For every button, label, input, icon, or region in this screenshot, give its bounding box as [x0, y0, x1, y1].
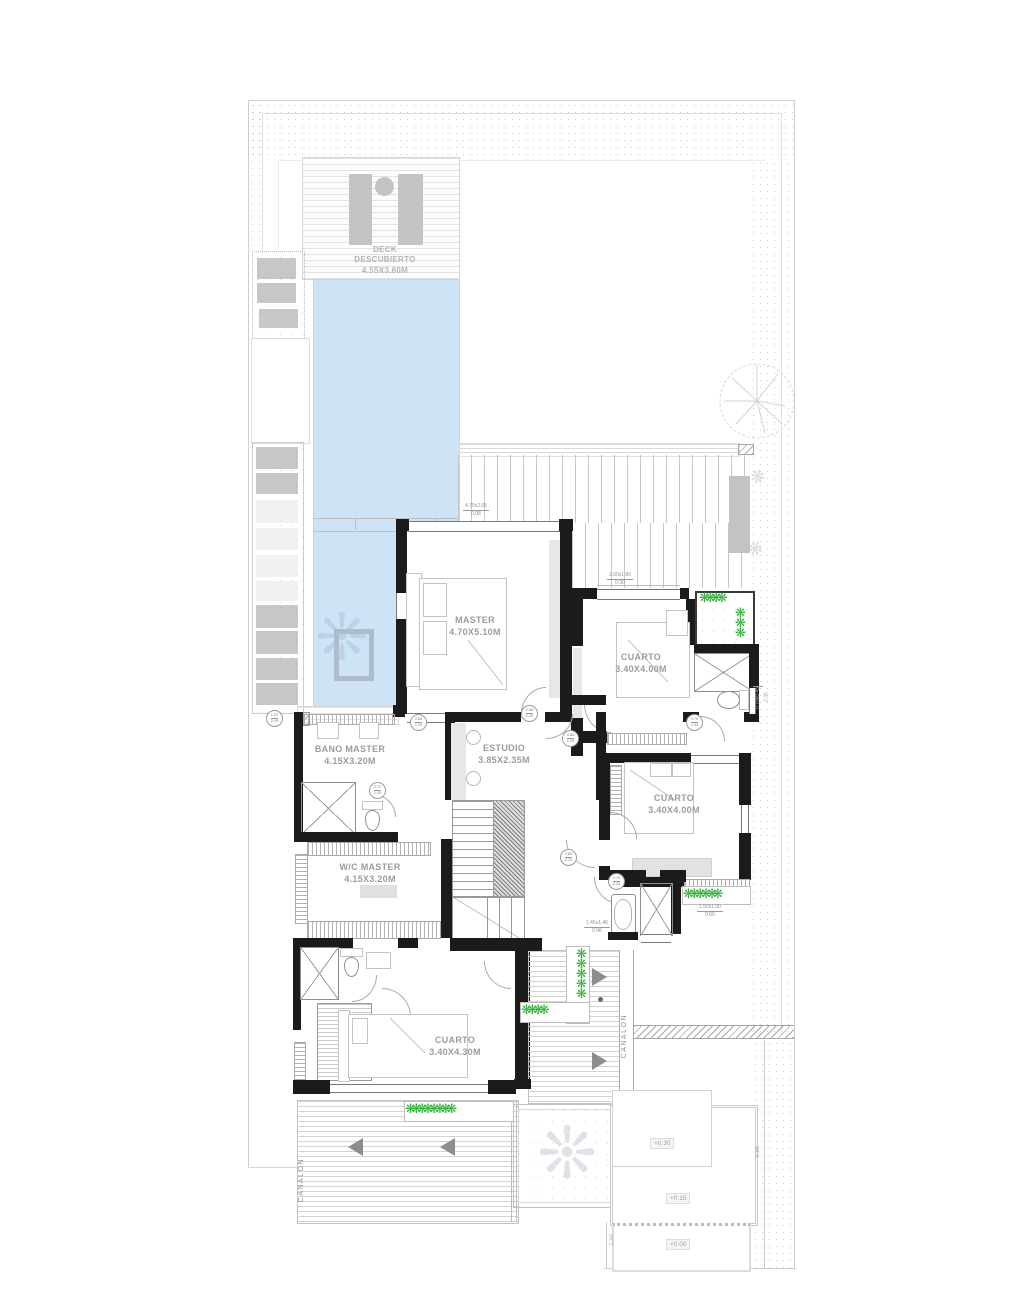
cuarto2-window-top — [691, 755, 740, 764]
hedge: ❋❋❋❋❋❋ — [682, 886, 751, 905]
door-tag: 0.70 2.05 — [369, 782, 386, 799]
wc-closet-top — [307, 842, 431, 856]
room-name: MASTER — [455, 615, 495, 627]
room-size: 3.40X4.00M — [615, 664, 667, 676]
pillow — [352, 1018, 368, 1044]
sink — [317, 722, 339, 739]
window-dim-bath2: 1.45x1.46 0.96 — [584, 920, 610, 934]
pillow — [666, 610, 688, 636]
step-block — [256, 447, 298, 469]
dim-line-150 — [606, 1222, 607, 1268]
wall — [571, 588, 583, 646]
tree-icon — [712, 356, 800, 450]
window-dim-size: 0.70x0.45 — [753, 686, 764, 709]
slope-arrow-icon — [440, 1138, 455, 1156]
dim-line-688 — [764, 1040, 765, 1268]
palm-tree-icon: ❊ — [537, 1118, 597, 1190]
wall-hatch — [294, 1042, 306, 1080]
door-tag: 0.70 2.35 — [608, 873, 625, 890]
wall — [293, 1000, 301, 1030]
wall — [294, 832, 398, 842]
step-block — [256, 555, 298, 577]
pergola-slats-upper — [458, 455, 745, 523]
door-tag-height: 2.35 — [613, 882, 621, 887]
inner-boundary-top — [262, 113, 781, 114]
window-dim-size: 2.00x1.80 — [607, 572, 633, 580]
step-block — [256, 473, 298, 494]
site-border-top — [248, 100, 795, 101]
cuarto1-sill — [607, 733, 687, 745]
site-border-right — [794, 100, 795, 1270]
window-dim-sill: 0.90 — [615, 580, 625, 587]
hedge: ❋❋❋❋❋❋❋❋ — [404, 1101, 514, 1122]
window-dim-cuarto1: 2.00x1.80 0.90 — [607, 572, 633, 586]
door-tag-height: 2.05 — [271, 719, 279, 724]
door-arc — [700, 716, 725, 741]
wall — [680, 588, 689, 599]
window-dim-size: 1.50x1.00 — [697, 904, 723, 912]
room-size: 4.15X3.20M — [344, 874, 396, 886]
wc-closet-bottom — [307, 921, 441, 939]
door-tag-height: 2.35 — [567, 739, 575, 744]
sink — [366, 952, 391, 969]
wall — [608, 932, 638, 940]
level-label-000: +0.00 — [666, 1239, 690, 1250]
toilet-tank — [739, 690, 749, 710]
door-tag-height: 2.35 — [691, 723, 699, 728]
door-arc — [484, 961, 511, 989]
gravel-band-top — [250, 102, 793, 159]
canalon-label-right: CANALON — [621, 1014, 628, 1058]
cuarto1-label: CUARTO 3.40X4.00M — [601, 652, 681, 675]
step-block — [256, 605, 298, 628]
door-arc — [352, 975, 377, 1002]
room-size: 3.40X4.30M — [429, 1047, 481, 1059]
shower — [301, 782, 356, 835]
planter-plants-top: ❋❋❋❋ — [699, 592, 723, 604]
step-block — [256, 528, 298, 550]
planter-plants-side: ❋❋❋ — [735, 606, 747, 636]
inner-boundary-left — [262, 113, 263, 253]
site-border-bottom-left — [248, 1167, 298, 1168]
site-border-left — [248, 100, 249, 1168]
door-tag: 0.88 2.35 — [562, 730, 579, 747]
cuarto1-window-top — [597, 589, 680, 600]
room-size: 4.15X3.20M — [324, 756, 376, 768]
wall — [528, 938, 542, 951]
deck-label-line2: DESCUBIERTO — [354, 255, 415, 265]
door-tag-height: 2.20 — [565, 858, 573, 863]
stairs-landing-line — [511, 896, 512, 940]
cuarto2-label: CUARTO 3.40X4.00M — [634, 793, 714, 816]
stairs-treads — [452, 800, 495, 898]
pergola-post — [738, 444, 754, 455]
pool-skylight — [334, 629, 374, 681]
shower — [694, 653, 753, 692]
wall — [293, 1080, 330, 1094]
wall — [596, 712, 606, 800]
wall — [739, 765, 751, 805]
service-box — [251, 338, 310, 444]
room-name: CUARTO — [435, 1035, 475, 1047]
slope-arrow-icon — [592, 968, 607, 986]
window-dim-sill: 0.60 — [705, 912, 715, 919]
room-size: 3.85X2.35M — [478, 755, 530, 767]
door-tag: 0.75 2.35 — [686, 714, 703, 731]
slope-arrow-icon — [592, 1052, 607, 1070]
pillow — [423, 583, 447, 617]
window-dim-bath1: 0.70x0.45 2.05 — [753, 686, 770, 709]
pool-wide — [313, 279, 460, 526]
cuarto2-closet — [610, 765, 622, 815]
wall — [739, 753, 751, 765]
wall — [447, 712, 521, 722]
door-tag: 1.20 2.05 — [266, 710, 283, 727]
wall — [488, 1080, 516, 1094]
stairs-landing-line — [487, 896, 488, 940]
window-dim-sill: 2.05 — [764, 693, 771, 703]
bathtub-basin — [614, 899, 632, 930]
cuarto2-window-right — [741, 805, 749, 833]
gravel-band-right — [750, 160, 794, 1035]
bano-master-label: BANO MASTER 4.15X3.20M — [310, 744, 390, 767]
room-name: BANO MASTER — [315, 744, 385, 756]
step-block — [256, 683, 298, 705]
wc-closet-left — [295, 854, 308, 924]
step-block — [256, 631, 298, 654]
door-tag-height: 2.35 — [526, 714, 534, 719]
level-label-015: +0.15 — [666, 1193, 690, 1204]
level-label-030: +0.30 — [650, 1138, 674, 1149]
door-tag: 0.88 2.35 — [521, 705, 538, 722]
step-block — [257, 283, 296, 303]
toilet-bowl — [717, 691, 740, 709]
stairs-landing — [452, 896, 525, 942]
inner-boundary2-left — [278, 160, 279, 250]
room-name: W/C MASTER — [340, 862, 401, 874]
step-block — [256, 658, 298, 680]
room-size: 4.70X5.10M — [449, 627, 501, 639]
bed-fold — [468, 640, 503, 685]
door-tag-height: 2.20 — [415, 723, 423, 728]
master-window-top — [409, 521, 561, 532]
inner-boundary-right — [781, 113, 782, 1035]
deck-label: DECK DESCUBIERTO 4.55X3.60M — [315, 245, 455, 276]
step-block — [257, 258, 296, 279]
wall — [694, 644, 751, 653]
window-dim-size: 4.70x2.05 — [463, 503, 489, 511]
wall — [514, 1079, 531, 1089]
gravel-band-left — [249, 102, 262, 252]
step-block — [256, 581, 298, 601]
dim-688: 6.88 — [755, 1146, 761, 1158]
bath2-window — [641, 934, 671, 943]
dim-150: 1.50 — [609, 1234, 615, 1246]
door-tag-height: 2.05 — [374, 791, 382, 796]
stairs-landing-line — [499, 896, 500, 940]
chair — [466, 771, 481, 786]
master-label: MASTER 4.70X5.10M — [430, 615, 520, 638]
shower — [640, 883, 673, 936]
cuarto3-window-bottom — [330, 1084, 488, 1093]
stairs-ramp — [493, 800, 525, 898]
canalon-label-left: CANALON — [298, 1158, 305, 1202]
hatch-band — [634, 1025, 794, 1039]
window-dim-master: 4.70x2.05 0.08 — [463, 503, 489, 517]
sink — [359, 722, 379, 739]
master-closet — [549, 540, 560, 698]
pool-bridge-tick — [355, 518, 356, 530]
step-block — [259, 309, 298, 328]
step-block — [256, 500, 298, 523]
cuarto3-label: CUARTO 3.40X4.30M — [415, 1035, 495, 1058]
floor-plan: ❋ ❋ DECK DESCUBIERTO 4.55X3.60M ❊ 4.70x2… — [0, 0, 1014, 1313]
wall — [660, 870, 686, 882]
wall — [441, 839, 452, 938]
wall — [450, 938, 518, 951]
deck-lounger — [349, 174, 372, 245]
toilet-tank — [340, 948, 363, 957]
room-size: 3.40X4.00M — [648, 805, 700, 817]
window-dim-size: 1.45x1.46 — [584, 920, 610, 928]
deck-table — [375, 177, 394, 196]
wall — [559, 519, 573, 531]
toilet-bowl — [344, 957, 359, 977]
hedge: ❋❋❋❋ — [520, 1002, 590, 1023]
door-arc — [382, 988, 411, 1017]
slope-arrow-icon — [348, 1138, 363, 1156]
terrace-030 — [612, 1090, 712, 1167]
room-name: CUARTO — [621, 652, 661, 664]
wall — [566, 695, 606, 705]
window-dim-sill: 0.96 — [592, 928, 602, 935]
planter-bar — [729, 476, 750, 553]
drain-dot — [598, 997, 603, 1002]
deck-label-line3: 4.55X3.60M — [362, 266, 408, 276]
wall — [396, 519, 409, 531]
wall — [398, 938, 418, 948]
wall — [583, 588, 597, 599]
estudio-label: ESTUDIO 3.85X2.35M — [464, 743, 544, 766]
deck-lounger — [398, 174, 423, 245]
room-name: CUARTO — [654, 793, 694, 805]
room-name: ESTUDIO — [483, 743, 525, 755]
wc-rug — [360, 885, 397, 898]
wc-master-label: W/C MASTER 4.15X3.20M — [320, 862, 420, 885]
deck-label-line1: DECK — [373, 245, 397, 255]
wall — [739, 833, 751, 880]
door-tag: 0.88 2.20 — [410, 714, 427, 731]
cuarto1-closet — [573, 648, 582, 718]
shower — [300, 947, 339, 1000]
window-dim-cuarto2: 1.50x1.00 0.60 — [697, 904, 723, 918]
window-dim-sill: 0.08 — [471, 511, 481, 518]
pergola-slats-lower — [572, 523, 745, 588]
door-tag: 0.88 2.20 — [560, 849, 577, 866]
